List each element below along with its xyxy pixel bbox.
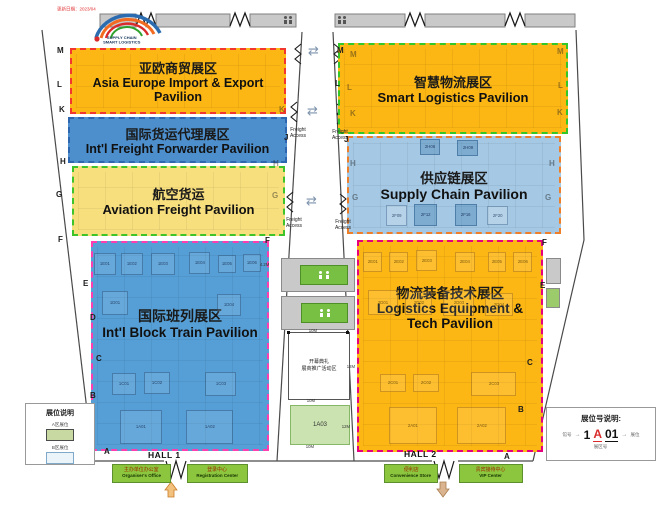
dimension-label: 10M: [306, 444, 314, 449]
booth-number-example: 馆号→ 1A01 →展位: [562, 427, 641, 442]
zone-b-swatch: [46, 452, 74, 464]
update-note: 更新日期：2023/04: [57, 6, 96, 12]
dimension-label: 12M: [347, 364, 355, 369]
booth-legend: 展位说明 A区展位 B区展位: [25, 403, 95, 465]
dimension-label: 10M: [307, 398, 315, 403]
legend-title: 展位说明: [46, 408, 74, 418]
booth-number-legend: 展位号说明: 馆号→ 1A01 →展位 展区号: [546, 407, 656, 461]
dimension-label: 10M: [309, 328, 317, 333]
zone-a-swatch: [46, 429, 74, 441]
legend-title: 展位号说明:: [581, 413, 621, 424]
legend-item-label: A区展位: [52, 421, 69, 427]
expo-floor-plan: { "note": { "text": "更新日期：2023/04" }, "l…: [0, 0, 659, 508]
logo-text: SUPPLY CHAINSMART LOGISTICS: [103, 36, 140, 46]
arrow-icon: →: [621, 432, 627, 438]
dimension-label: 12M: [342, 424, 350, 429]
dimension-label: 4.2M: [260, 262, 269, 267]
legend-item-label: B区展位: [52, 444, 69, 450]
arrow-icon: →: [575, 432, 581, 438]
